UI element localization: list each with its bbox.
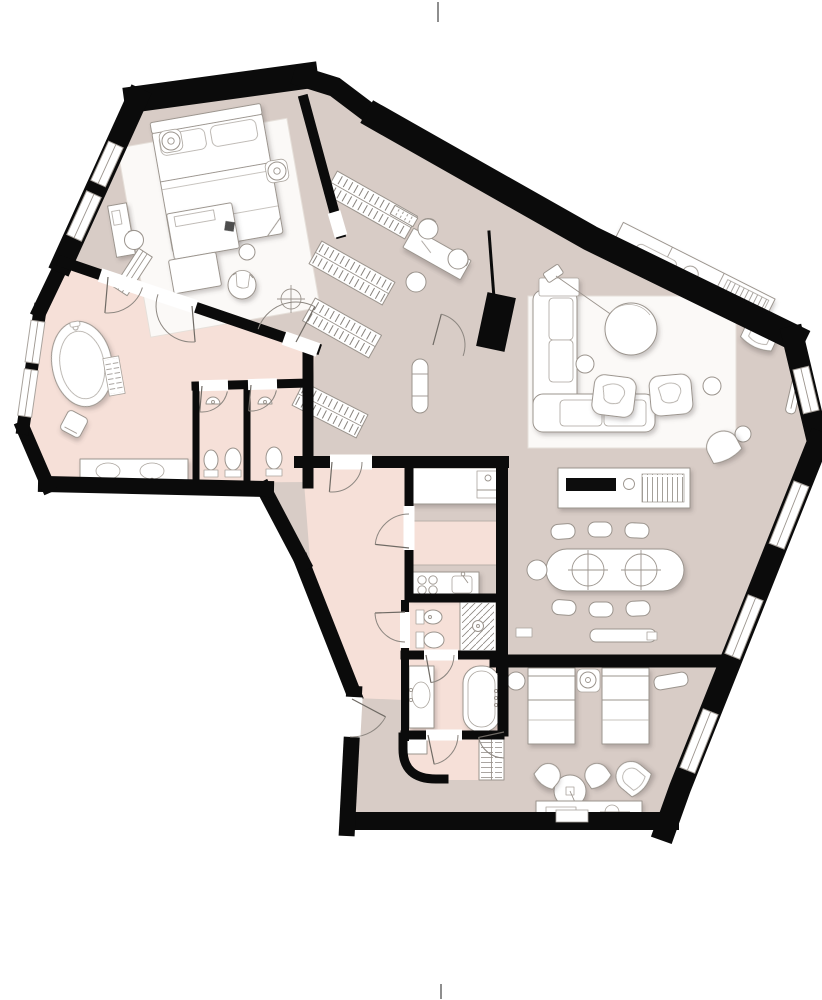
lounge-chair-2 [648,373,693,417]
built-in-bathtub [463,666,500,732]
dining-radiator-bench [590,629,657,642]
wall-switch-box [516,628,532,637]
sofa-side-table [576,355,594,373]
vanity-2 [409,666,434,728]
bedroom-side-table [239,244,255,260]
credenza [558,468,690,508]
threshold-niche [556,810,588,822]
desk-chair [125,230,144,249]
lounge-chair-1 [591,374,638,419]
dining-table [546,549,684,591]
drawer-chest [479,737,504,780]
round-coffee-table [605,303,657,355]
kitchen-island [411,521,502,565]
kitchen-wall-counter [411,468,502,504]
single-bed-1 [528,668,575,744]
bidet-2 [416,610,442,624]
nightstand-right [264,158,289,183]
study-chair-2 [448,249,468,269]
study-chair-3 [406,272,426,292]
floor-plan-canvas [0,0,822,1000]
nightstand-left [158,128,183,153]
toilet-2 [416,632,444,648]
study-chair-1 [418,218,438,239]
walk-in-shower [460,601,496,652]
shared-nightstand [577,669,600,692]
bedroom-lounge-chair [228,270,256,299]
hall-luggage-console [412,359,428,413]
bedroom2-pouf [507,672,525,690]
single-bed-2 [602,668,649,744]
side-table-2 [703,377,721,395]
